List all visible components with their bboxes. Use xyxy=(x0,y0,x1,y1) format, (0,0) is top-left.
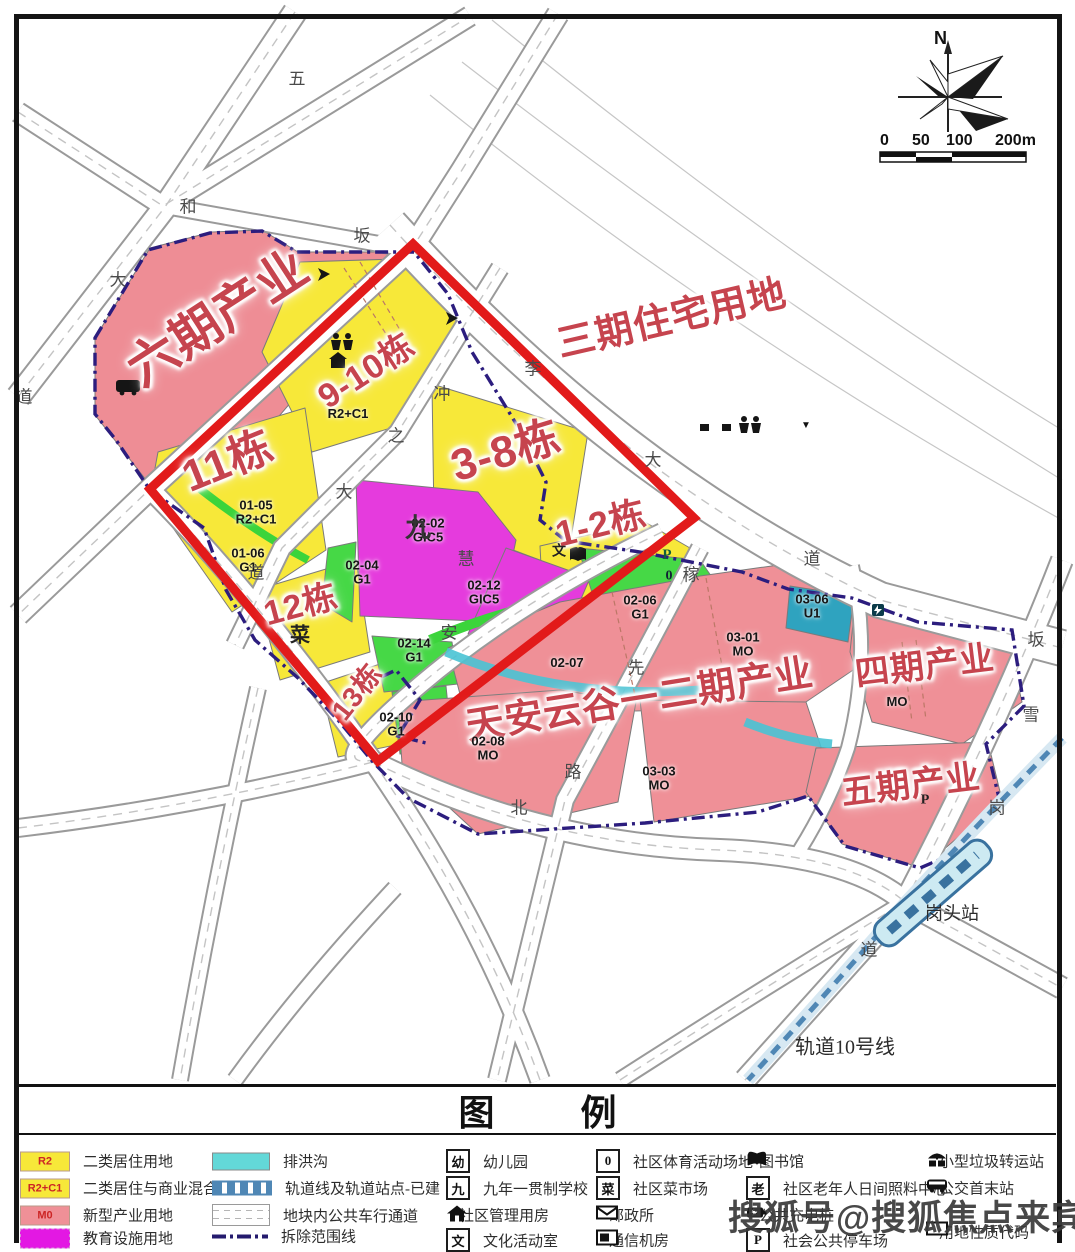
parcel-code-01-05: 01-05R2+C1 xyxy=(236,498,277,525)
parcel-code: 03-01 xyxy=(726,630,759,644)
parcel-code: 02-10 xyxy=(379,710,412,724)
road-label-char: 雪 xyxy=(1023,701,1040,726)
road-label-char: 安 xyxy=(441,619,458,644)
road-label-char: 道 xyxy=(861,936,878,961)
road-label-char: 坂 xyxy=(1028,626,1045,651)
legend-label: 拆除范围线 xyxy=(281,1226,356,1247)
legend-label: 排洪沟 xyxy=(283,1151,328,1172)
legend-item-education: 教育设施用地 xyxy=(20,1228,173,1249)
road-label-char: 稼 xyxy=(683,561,700,586)
legend-item-waste: 小型垃圾转运站 xyxy=(926,1151,1044,1172)
legend-label: 九年一贯制学校 xyxy=(483,1178,588,1199)
scale-tick: 200m xyxy=(995,132,1036,150)
road-label-char: 先 xyxy=(628,654,645,679)
road-label-char: 慧 xyxy=(458,545,475,570)
parking-mark: P xyxy=(662,548,671,564)
map-frame-right xyxy=(1057,14,1062,1243)
culture-mark: 文 xyxy=(552,546,566,561)
parcel-code-02-06: 02-06G1 xyxy=(623,593,656,620)
parcel-use: G1 xyxy=(623,607,656,621)
metro-swatch xyxy=(212,1181,272,1196)
legend-title: 图 例 xyxy=(420,1084,654,1136)
parcel-code-02-08: 02-08MO xyxy=(471,734,504,761)
road-label-char: 之 xyxy=(388,422,405,447)
charging-icon xyxy=(872,604,884,616)
swatch-r2c1: R2+C1 xyxy=(20,1178,70,1198)
parcel-code: MO xyxy=(887,695,908,709)
road-label-char: 大 xyxy=(110,266,127,291)
parcel-use: GIC5 xyxy=(467,592,500,606)
parcel-code: 01-05 xyxy=(236,498,277,512)
parcel-code: R2+C1 xyxy=(328,407,369,421)
parcel-use: MO xyxy=(726,644,759,658)
parcel-code: 03-03 xyxy=(642,764,675,778)
parcel-code-03-03: 03-03MO xyxy=(642,764,675,791)
culture-icon: 文 xyxy=(446,1228,470,1252)
parcel-code: 02-12 xyxy=(467,578,500,592)
parcel-use: G1 xyxy=(345,572,378,586)
legend-label: 地块内公共车行通道 xyxy=(283,1205,418,1226)
legend-title-band: 图 例 xyxy=(19,1084,1056,1135)
legend-label: 社区管理用房 xyxy=(459,1205,549,1226)
watermark: 搜狐号@搜狐焦点来宾站 xyxy=(728,1190,1068,1241)
legend-label: 社区菜市场 xyxy=(633,1178,708,1199)
legend-label: 幼儿园 xyxy=(483,1151,528,1172)
road-label-char: 路 xyxy=(565,758,582,783)
swatch-education xyxy=(20,1228,70,1248)
road-label-char: 和 xyxy=(180,193,197,218)
kindergarten-icon: 幼 xyxy=(446,1149,470,1173)
parcel-use: G1 xyxy=(397,650,430,664)
map-canvas xyxy=(0,0,1075,1085)
sports-ground-mark: 0 xyxy=(666,570,673,585)
metro-line-label: 轨道10号线 xyxy=(795,1038,895,1059)
sports-ground-icon: 0 xyxy=(596,1149,620,1173)
legend-item-market: 菜 社区菜市场 xyxy=(596,1176,708,1200)
legend-label: 通信机房 xyxy=(609,1230,669,1251)
parcel-code-03-06: 03-06U1 xyxy=(795,592,828,619)
parcel-code: 02-14 xyxy=(397,636,430,650)
parcel-code: 02-04 xyxy=(345,558,378,572)
legend-item-r2: R2 二类居住用地 xyxy=(20,1151,173,1172)
road-label-char: 道 xyxy=(804,545,821,570)
road-label-char: 道 xyxy=(248,559,265,584)
legend-label: 轨道线及轨道站点-已建 xyxy=(285,1178,440,1199)
legend-item-lane: 地块内公共车行通道 xyxy=(212,1204,418,1226)
parcel-code: 03-06 xyxy=(795,592,828,606)
legend-item-post: 邮政所 xyxy=(596,1205,654,1226)
road-label-char: 北 xyxy=(511,794,528,819)
legend-item-drain: 排洪沟 xyxy=(212,1151,328,1172)
scale-tick: 100 xyxy=(946,132,973,150)
map-frame-left xyxy=(14,14,19,1243)
legend-item-kindergarten: 幼 幼儿园 xyxy=(446,1149,528,1173)
swatch-r2: R2 xyxy=(20,1151,70,1171)
school-mark: 九 xyxy=(405,514,431,541)
parcel-code-02-04: 02-04G1 xyxy=(345,558,378,585)
legend-label: 社区体育活动场地 xyxy=(633,1151,753,1172)
metro-station-label: 岗头站 xyxy=(925,905,979,924)
parcel-use: MO xyxy=(642,778,675,792)
compass-north-label: N xyxy=(934,28,947,49)
road-label-char: 大 xyxy=(336,478,353,503)
road-label-char: 坂 xyxy=(354,222,371,247)
parcel-code-03-01: 03-01MO xyxy=(726,630,759,657)
swatch-m0: M0 xyxy=(20,1205,70,1225)
triangle-mark: ▼ xyxy=(801,421,811,432)
market-icon: 菜 xyxy=(596,1176,620,1200)
legend-item-sports: 0 社区体育活动场地 xyxy=(596,1149,753,1173)
parcel-code: 02-06 xyxy=(623,593,656,607)
parcel-code-02-12: 02-12GIC5 xyxy=(467,578,500,605)
parcel-code-02-10: 02-10G1 xyxy=(379,710,412,737)
legend-item-school: 九 九年一贯制学校 xyxy=(446,1176,588,1200)
planning-map-page: 六期产业 三期住宅用地 天安云谷一二期产业 四期产业 五期产业 9-10栋 11… xyxy=(0,0,1075,1243)
lane-swatch xyxy=(212,1204,270,1226)
legend-label: 新型产业用地 xyxy=(83,1205,173,1226)
parcel-code-phase4-mo: MO xyxy=(887,695,908,709)
demolition-swatch xyxy=(212,1234,268,1238)
scale-tick: 0 xyxy=(880,132,889,150)
legend-label: 文化活动室 xyxy=(483,1230,558,1251)
legend-item-management: 社区管理用房 xyxy=(446,1205,549,1226)
parking-mark: P xyxy=(921,794,930,809)
parcel-code-02-14: 02-14G1 xyxy=(397,636,430,663)
legend-item-telecom: 通信机房 xyxy=(596,1230,669,1251)
road-label-char: 李 xyxy=(525,355,542,380)
parcel-use: U1 xyxy=(795,606,828,620)
parcel-code: 02-08 xyxy=(471,734,504,748)
map-frame-top xyxy=(14,14,1062,19)
road-label-char: 五 xyxy=(289,65,306,90)
market-mark: 菜 xyxy=(290,626,310,647)
road-label-char: 冲 xyxy=(434,380,451,405)
legend-item-culture: 文 文化活动室 xyxy=(446,1228,558,1252)
scale-bar xyxy=(880,152,1026,162)
school-icon: 九 xyxy=(446,1176,470,1200)
legend-item-library: 图书馆 xyxy=(746,1151,804,1172)
legend-item-metro: 轨道线及轨道站点-已建 xyxy=(212,1178,440,1199)
legend-item-demolition: 拆除范围线 xyxy=(212,1226,356,1247)
road-label-char: 岗 xyxy=(989,794,1006,819)
scale-tick: 50 xyxy=(912,132,930,150)
parcel-code-r2c1: R2+C1 xyxy=(328,407,369,421)
legend-label: 小型垃圾转运站 xyxy=(939,1151,1044,1172)
parcel-code: 02-07 xyxy=(550,656,583,670)
drain-swatch xyxy=(212,1152,270,1170)
parcel-code-02-07: 02-07 xyxy=(550,656,583,670)
legend-item-m0: M0 新型产业用地 xyxy=(20,1205,173,1226)
parcel-use: G1 xyxy=(379,724,412,738)
parcel-use: R2+C1 xyxy=(236,512,277,526)
legend-label: 教育设施用地 xyxy=(83,1228,173,1249)
legend-label: 二类居住用地 xyxy=(83,1151,173,1172)
road-label-char: 大 xyxy=(645,446,662,471)
parcel-use: MO xyxy=(471,748,504,762)
